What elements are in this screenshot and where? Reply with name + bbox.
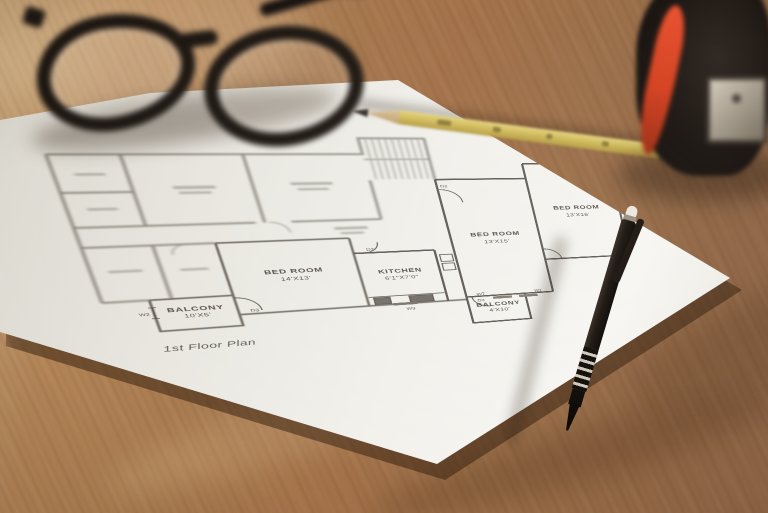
door-marker-d2-b: D2 <box>440 185 449 189</box>
bedroom-14x13-size: 14'X13' <box>280 275 312 282</box>
photo-scene: BED ROOM 14'X13' BED ROOM 13'X15' BED RO… <box>0 0 768 513</box>
window-marker-w7: W7 <box>476 292 485 296</box>
bedroom-13x15-size: 13'X15' <box>484 238 511 244</box>
tape-measure-screw <box>732 94 741 103</box>
kitchen-size: 6'1"X7'0" <box>384 274 419 281</box>
pencil-marking <box>602 141 610 147</box>
pencil-marking <box>493 127 502 133</box>
door-marker-d3-a: D3 <box>250 308 260 312</box>
glasses-hinge <box>22 5 47 28</box>
plan-mid-walls <box>130 234 470 331</box>
door-marker-d2-a: D2 <box>366 248 375 252</box>
window-marker-w3: W3 <box>406 307 416 311</box>
bedroom-13x16-label: BED ROOM <box>553 204 600 211</box>
pencil-marking <box>437 119 452 126</box>
bedroom-13x15-label: BED ROOM <box>470 231 521 239</box>
glasses-right-lens <box>197 17 370 156</box>
bedroom-13x16-size: 13'X16' <box>566 212 591 218</box>
glasses-left-lens <box>28 2 204 142</box>
glasses-temple-arm-folded <box>259 0 378 17</box>
plan-title: 1st Floor Plan <box>161 337 257 353</box>
pencil-marking <box>546 134 553 140</box>
window-marker-w2: W2 <box>138 313 151 318</box>
tape-measure-metal-clip <box>706 76 768 144</box>
eyeglasses <box>8 0 380 166</box>
balcony-4x10-size: 4'X10' <box>489 306 511 312</box>
balcony-10x5-size: 10'X5' <box>183 311 212 318</box>
tape-measure <box>628 0 768 192</box>
door-marker-d3-b: D3 <box>477 299 485 303</box>
pencil-lead-tip <box>351 107 368 117</box>
